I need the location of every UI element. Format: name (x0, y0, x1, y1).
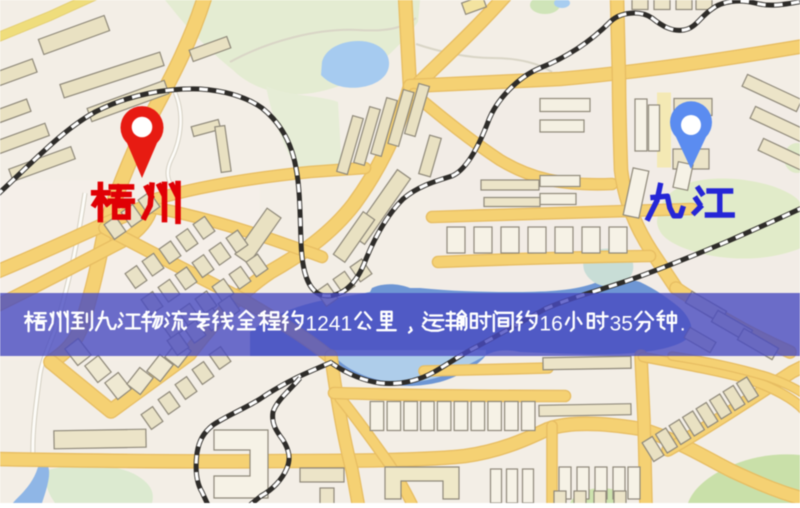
svg-text:6: 6 (551, 313, 563, 336)
svg-text:5: 5 (621, 313, 633, 336)
svg-text:1: 1 (305, 313, 317, 336)
svg-text:1: 1 (341, 313, 353, 336)
svg-text:2: 2 (317, 313, 329, 336)
svg-text:.: . (680, 313, 686, 336)
svg-text:1: 1 (539, 313, 551, 336)
svg-text:3: 3 (610, 313, 622, 336)
svg-text:4: 4 (329, 313, 341, 336)
